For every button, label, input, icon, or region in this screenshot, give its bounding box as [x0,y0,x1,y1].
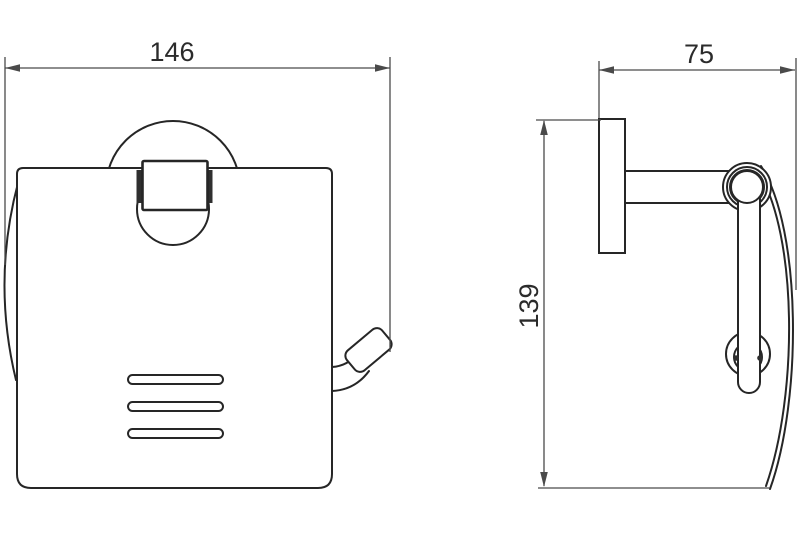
arrowhead-bottom [540,472,548,487]
front-view [4,121,394,488]
cover-side-profile-inner [758,171,789,486]
vent-slot-1 [128,375,223,384]
knob-pin-left [733,355,739,361]
dim-label-front-width: 146 [149,37,194,67]
lever-knob [343,325,395,374]
arrowhead-right [375,64,390,72]
toilet-paper-holder-drawing: 146 75 139 [0,0,800,533]
paper-roll-left-edge [4,183,18,380]
arrowhead-right [780,66,795,74]
side-view [599,119,793,489]
vent-slot-3 [128,429,223,438]
spindle-bar [738,180,760,393]
dim-label-side-height: 139 [514,283,544,328]
arrowhead-left [599,66,614,74]
wall-plate [599,119,625,253]
dimension-side-depth: 75 [599,39,796,290]
knob-pin-right [757,355,763,361]
arrowhead-top [540,120,548,135]
dim-label-side-depth: 75 [684,39,714,69]
technical-drawing-page: 146 75 139 [0,0,800,533]
lever-neck-lower-line [332,371,369,391]
latch-plate [143,161,208,210]
vent-slot-2 [128,402,223,411]
pivot-boss [731,171,763,203]
arrowhead-left [5,64,20,72]
